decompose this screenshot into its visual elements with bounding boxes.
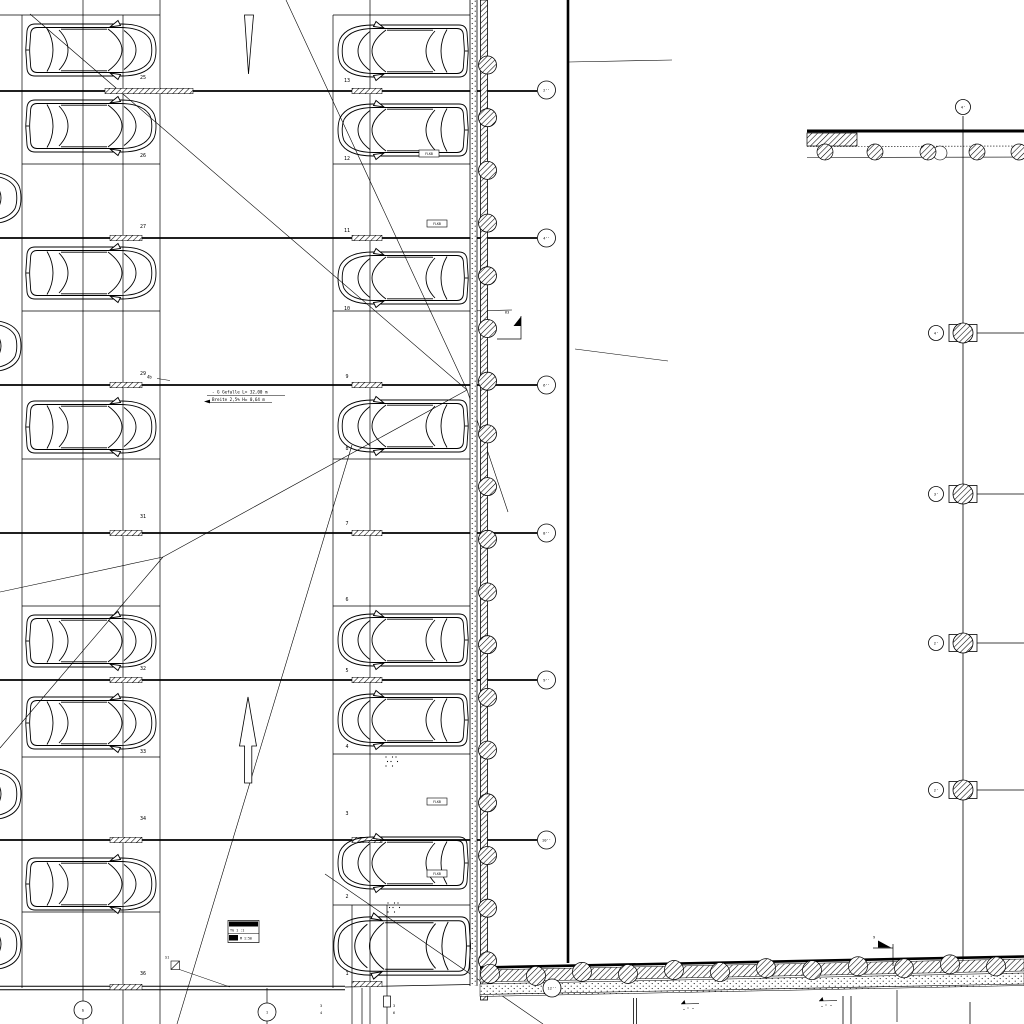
divider-hatch-tick (110, 235, 142, 241)
parked-car (338, 101, 468, 160)
top-right-wall (807, 131, 1024, 160)
wall-column (479, 583, 497, 601)
drain-dots (389, 907, 390, 908)
grid-bubble-label: 12'' (547, 985, 556, 990)
wall-column (941, 955, 960, 974)
parked-car-partial (0, 765, 21, 824)
drain-dots (392, 756, 393, 757)
ramp-annotation: - G Gefalle L= 32,00 m Breite 2,5% H= 0,… (147, 375, 285, 404)
divider-hatch-tick (105, 88, 193, 94)
parked-car (338, 611, 468, 670)
stall-number: 8 (345, 446, 348, 452)
stamp-header: PKW-EINST. (230, 923, 250, 927)
wall-column (479, 688, 497, 706)
leader-line (569, 60, 672, 62)
wall-column (479, 847, 497, 865)
parked-car (26, 398, 156, 457)
divider-hatch-tick (352, 88, 382, 94)
parked-car-partial (0, 915, 21, 974)
wall-column (479, 267, 497, 285)
wall-column (987, 957, 1006, 976)
construction-line (0, 557, 163, 592)
parked-car (26, 855, 156, 914)
grid-bubble-label: 4' (934, 330, 939, 335)
stall-number: 10 (344, 306, 350, 312)
grid-bubble-label: 4'' (543, 235, 550, 240)
wall-column (479, 425, 497, 443)
grid-column-symbols-layer (949, 323, 1024, 800)
grid-bubble-label: 9'' (543, 677, 550, 682)
stall-number: 31 (140, 514, 146, 520)
wall-column (711, 963, 730, 982)
cad-parking-floor-plan: 25262729313233343613121110987654321 2''4… (0, 0, 1024, 1024)
section-marker-label: 63 (505, 311, 509, 315)
stall-number: 7 (345, 521, 348, 527)
tiny-note: 3 (320, 1004, 322, 1008)
stall-number: 2 (345, 894, 348, 900)
drain-dots (392, 907, 393, 908)
divider-hatch-tick (110, 677, 142, 683)
parked-car (26, 97, 156, 156)
tiny-note: 6 (393, 1011, 395, 1015)
parked-car (338, 397, 468, 456)
grid-bubble-label: 2' (934, 640, 939, 645)
column-symbol (953, 323, 973, 343)
ramp-annotation-line1: - G Gefalle L= 32,00 m (212, 390, 268, 395)
section-marker-label: S1 (165, 956, 169, 960)
drain-dots (387, 911, 388, 912)
grid-bubble-label: 6'' (543, 382, 550, 387)
wall-column (479, 214, 497, 232)
section-marker-3: S1 (165, 956, 230, 988)
wall-column (479, 478, 497, 496)
wall-column (1011, 144, 1024, 160)
wall-column (479, 899, 497, 917)
level-marker-tick (681, 1000, 686, 1004)
grid-bubble-label: 10'' (542, 837, 551, 842)
stall-number: 11 (344, 228, 350, 234)
divider-hatch-tick (110, 837, 142, 843)
level-marker-dots (693, 1008, 694, 1009)
stamp-row: TG 1 :1 (230, 929, 244, 933)
wall-column (479, 636, 497, 654)
section-marker-2: 9 (873, 936, 893, 967)
wall-end-hatch (807, 133, 857, 146)
parked-car-partial (0, 317, 21, 376)
parked-car (338, 834, 468, 893)
divider-hatch-tick (352, 677, 382, 683)
parked-car (26, 21, 156, 80)
stamp-scale: M 1:50 (240, 937, 252, 941)
ramp-note: 4b (147, 375, 152, 380)
construction-line (0, 557, 163, 748)
parked-car (26, 244, 156, 303)
divider-hatch-tick (110, 382, 142, 388)
grid-bubble-label: 2'' (543, 87, 550, 92)
wall-column (849, 957, 868, 976)
lane-arrow-top (245, 15, 254, 74)
section-marker-1: 63 (497, 311, 521, 340)
wall-column (479, 372, 497, 390)
stall-number: 34 (140, 816, 146, 822)
drain-dots (397, 761, 398, 762)
divider-hatch-tick (352, 235, 382, 241)
drain-dots (385, 756, 386, 757)
parked-car (338, 249, 468, 308)
stall-number: 12 (344, 156, 350, 162)
parked-car (338, 22, 468, 81)
column-symbol (953, 484, 973, 504)
wall-column (479, 741, 497, 759)
divider-hatch-tick (352, 382, 382, 388)
tiny-note: 4 (320, 1011, 322, 1015)
wall-column (573, 962, 592, 981)
parked-car-partial (0, 169, 21, 228)
wall-column (757, 959, 776, 978)
stall-number: 6 (345, 597, 348, 603)
level-tag-label: FLKB (425, 152, 433, 156)
wall-column (527, 966, 546, 985)
parked-suv (334, 913, 471, 979)
tiny-note: 3 (393, 1004, 395, 1008)
stall-number: 33 (140, 749, 146, 755)
stall-number: 32 (140, 666, 146, 672)
parked-car (26, 612, 156, 671)
section-marker-label: 9 (873, 936, 875, 940)
wall-column (920, 144, 936, 160)
construction-line (163, 390, 467, 557)
level-marker-dots (826, 1005, 827, 1006)
drain-dots (399, 907, 400, 908)
level-marker-dots (684, 1009, 685, 1010)
wall-insulation-strip (471, 0, 478, 986)
stall-number: 26 (140, 153, 146, 159)
stall-number: 9 (345, 374, 348, 380)
level-marker-dots (831, 1005, 832, 1006)
stall-number: 5 (345, 668, 348, 674)
wall-column (619, 964, 638, 983)
grid-bubbles-layer: 2''4''6''8''9''10''b112''4'4'3'2'2' (74, 81, 971, 1021)
leader-line (575, 349, 668, 361)
drain-dots (390, 761, 391, 762)
column-symbol (953, 633, 973, 653)
stall-number: 1 (345, 971, 348, 977)
wall-column (479, 794, 497, 812)
door-symbol (384, 996, 391, 1007)
legend-stamp: PKW-EINST. TG 1 :1 M 1:50 (228, 921, 259, 943)
parked-car (26, 694, 156, 753)
grid-bubble-label: 4' (961, 104, 966, 109)
wall-column (479, 320, 497, 338)
construction-line (177, 445, 352, 1024)
grid-bubble-label: 8'' (543, 530, 550, 535)
level-marker-dots (822, 1006, 823, 1007)
leader-arrowhead (204, 400, 210, 404)
drain-dots (395, 756, 396, 757)
wall-column (817, 144, 833, 160)
divider-hatch-tick (110, 530, 142, 536)
level-marker-dots (688, 1008, 689, 1009)
stall-number: 13 (344, 78, 350, 84)
level-tag-label: FLKB (433, 800, 441, 804)
ramp-annotation-line2: Breite 2,5% H= 0,64 m (212, 397, 265, 402)
level-marker-tick (819, 997, 824, 1001)
level-tag-label: FLKB (433, 222, 441, 226)
drain-dots (385, 765, 386, 766)
wall-column (969, 144, 985, 160)
drain-dots (392, 765, 393, 766)
wall-column (895, 959, 914, 978)
wall-column (479, 56, 497, 74)
wall-column (803, 961, 822, 980)
column-symbol (953, 780, 973, 800)
grid-bubble-label: 3' (934, 491, 939, 496)
stall-number: 29 (140, 371, 146, 377)
wall-column (479, 109, 497, 127)
drain-dots (394, 911, 395, 912)
drain-dots (397, 902, 398, 903)
drain-dots (394, 902, 395, 903)
stall-number: 4 (345, 744, 348, 750)
grid-bubble-label: 2' (934, 787, 939, 792)
floor-plan-canvas: 25262729313233343613121110987654321 2''4… (0, 0, 1024, 1024)
stall-labels-layer: 25262729313233343613121110987654321 (140, 75, 350, 977)
wall-column (479, 530, 497, 548)
wall-column (479, 161, 497, 179)
drain-dots (387, 761, 388, 762)
drain-dots (387, 902, 388, 903)
level-tag-label: FLKB (433, 872, 441, 876)
construction-lines-layer (0, 0, 672, 1024)
divider-hatch-tick (352, 981, 382, 987)
construction-line (325, 874, 543, 1024)
divider-hatch-tick (352, 530, 382, 536)
wall-column (867, 144, 883, 160)
stall-number: 27 (140, 224, 146, 230)
wall-column (665, 961, 684, 980)
stall-number: 25 (140, 75, 146, 81)
parked-car (338, 691, 468, 750)
divider-hatch-tick (110, 984, 142, 990)
construction-line (286, 0, 467, 390)
stall-number: 3 (345, 811, 348, 817)
stall-number: 36 (140, 971, 146, 977)
wall-column (481, 964, 500, 983)
